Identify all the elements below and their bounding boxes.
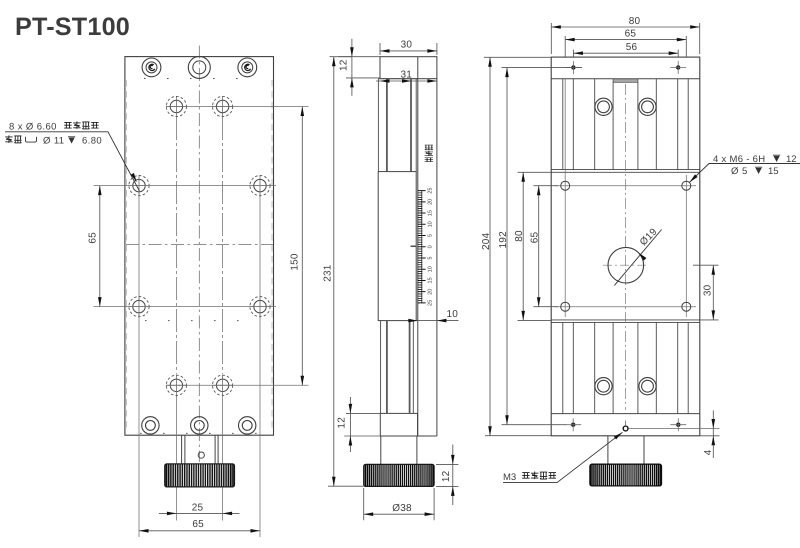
svg-text:6.80: 6.80: [82, 135, 102, 146]
svg-text:25: 25: [428, 300, 434, 306]
svg-text:25: 25: [192, 502, 204, 513]
svg-text:30: 30: [401, 40, 413, 51]
svg-text:56: 56: [626, 42, 638, 53]
svg-text:15: 15: [428, 277, 434, 283]
svg-text:10: 10: [428, 266, 434, 272]
svg-text:4: 4: [703, 449, 714, 455]
svg-text:204: 204: [481, 232, 492, 250]
svg-text:Ø 11: Ø 11: [43, 135, 65, 146]
svg-text:10: 10: [447, 309, 459, 320]
svg-text:80: 80: [514, 230, 525, 242]
svg-text:Ø19: Ø19: [638, 226, 660, 248]
svg-text:15: 15: [768, 166, 779, 177]
svg-text:192: 192: [498, 231, 509, 249]
svg-text:PT-ST100: PT-ST100: [15, 13, 130, 41]
svg-text:0: 0: [428, 245, 434, 248]
svg-text:80: 80: [629, 16, 641, 27]
svg-text:Ø 5: Ø 5: [731, 166, 748, 177]
svg-text:12: 12: [338, 59, 349, 71]
svg-text:5: 5: [428, 256, 434, 259]
svg-text:20: 20: [428, 199, 434, 205]
svg-text:12: 12: [337, 417, 348, 429]
svg-text:M3: M3: [503, 472, 516, 483]
svg-text:15: 15: [428, 210, 434, 216]
svg-text:31: 31: [401, 70, 413, 81]
svg-text:5: 5: [428, 234, 434, 237]
svg-text:150: 150: [290, 253, 301, 271]
svg-text:231: 231: [323, 264, 334, 282]
svg-text:10: 10: [428, 221, 434, 227]
svg-text:65: 65: [87, 232, 98, 244]
svg-text:65: 65: [192, 519, 204, 530]
svg-text:Ø38: Ø38: [392, 503, 412, 514]
svg-text:30: 30: [702, 284, 713, 296]
svg-text:12: 12: [441, 470, 452, 482]
svg-text:8 x Ø 6.60: 8 x Ø 6.60: [9, 122, 57, 133]
svg-text:65: 65: [530, 232, 541, 244]
svg-text:20: 20: [428, 289, 434, 295]
svg-text:65: 65: [625, 29, 637, 40]
svg-text:25: 25: [428, 187, 434, 193]
